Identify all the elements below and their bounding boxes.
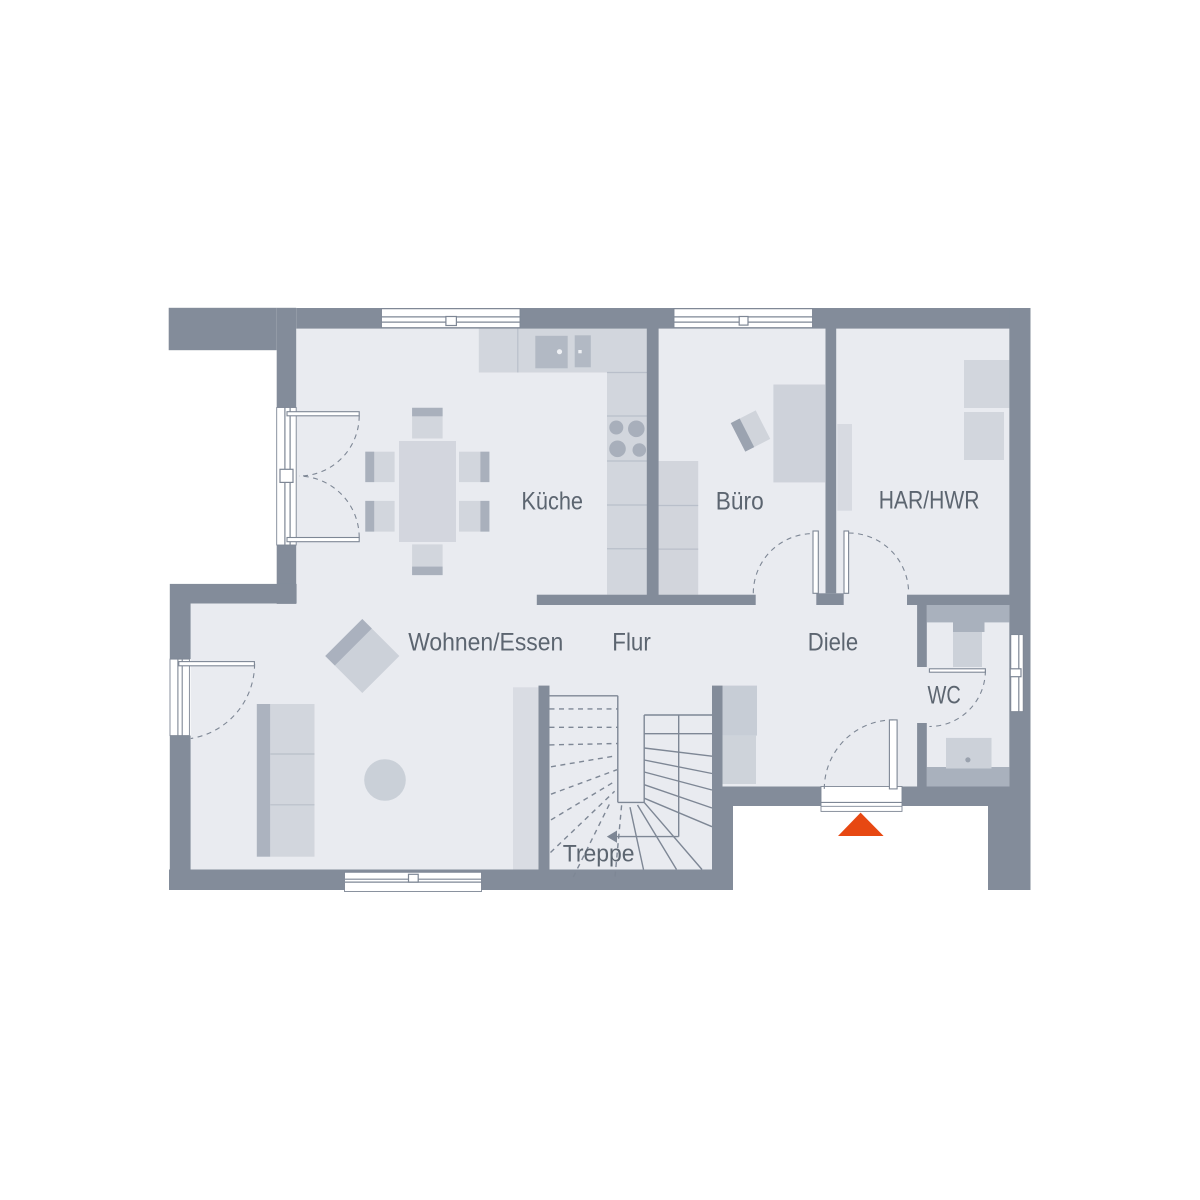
svg-text:Flur: Flur [612, 630, 651, 657]
svg-text:Wohnen/Essen: Wohnen/Essen [408, 630, 563, 657]
svg-text:HAR/HWR: HAR/HWR [879, 488, 980, 515]
svg-text:WC: WC [928, 683, 961, 710]
svg-text:Küche: Küche [521, 489, 583, 516]
svg-text:Treppe: Treppe [563, 840, 635, 867]
svg-text:Diele: Diele [808, 630, 858, 657]
svg-text:Büro: Büro [716, 489, 764, 516]
